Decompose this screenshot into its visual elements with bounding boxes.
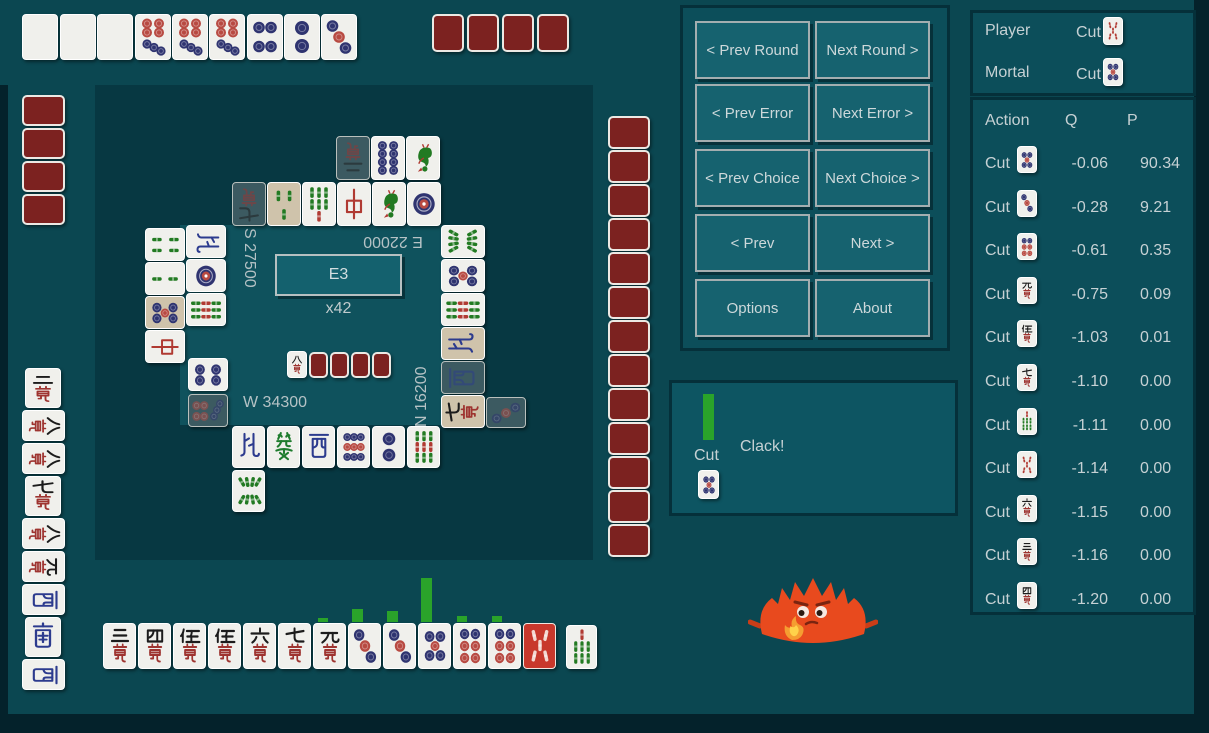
- tile-bk: [608, 218, 650, 251]
- tile-6p: [488, 623, 521, 669]
- tile-3p: [486, 397, 526, 428]
- prev-button[interactable]: < Prev: [695, 214, 810, 272]
- tile-bk: [467, 14, 499, 52]
- q-column-header: Q: [1065, 112, 1077, 130]
- tile-7p: [172, 14, 208, 60]
- frame-edge-left: [0, 85, 8, 733]
- q-value: -0.06: [1058, 155, 1108, 173]
- tile-4p: [247, 14, 283, 60]
- score-east: E 22000: [348, 232, 438, 250]
- tile-bk: [608, 354, 650, 387]
- tile-bk: [608, 252, 650, 285]
- mortal-label: Mortal: [985, 64, 1029, 82]
- action-column-header: Action: [985, 112, 1029, 130]
- tile-2m: [25, 368, 61, 408]
- thinking-crab-icon: [748, 556, 878, 648]
- tile-bk: [22, 161, 65, 192]
- tile-C: [337, 182, 371, 226]
- event-action-label: Cut: [694, 447, 719, 465]
- p-value: 0.00: [1140, 417, 1171, 435]
- tile-5m: [208, 623, 241, 669]
- q-value: -1.11: [1058, 417, 1108, 435]
- tile-bk: [502, 14, 534, 52]
- tile-bk: [537, 14, 569, 52]
- action-label: Cut: [985, 504, 1010, 522]
- tile-3m: [103, 623, 136, 669]
- score-west: W 34300: [243, 394, 307, 412]
- tile-r5s: [1017, 451, 1037, 478]
- tile-6m: [243, 623, 276, 669]
- event-policy-bar: [703, 394, 714, 440]
- tile-7p: [209, 14, 245, 60]
- tile-4p: [188, 358, 228, 391]
- tile-8s: [441, 225, 485, 258]
- tile-bk: [608, 320, 650, 353]
- tile-7m: [232, 182, 266, 226]
- tile-8m: [22, 410, 65, 441]
- score-south: S 27500: [240, 228, 258, 288]
- tile-1p: [186, 259, 226, 292]
- tile-3p: [1017, 190, 1037, 217]
- tile-bk: [608, 286, 650, 319]
- tile-2s: [145, 262, 185, 295]
- tile-S: [25, 617, 61, 657]
- tile-7p: [135, 14, 171, 60]
- p-column-header: P: [1127, 112, 1138, 130]
- tile-5p: [418, 623, 451, 669]
- tile-5p: [1103, 58, 1123, 86]
- tile-9m: [22, 551, 65, 582]
- tile-bk: [22, 194, 65, 225]
- tile-3p: [348, 623, 381, 669]
- tile-5p: [145, 296, 185, 329]
- next-error-button[interactable]: Next Error >: [815, 84, 930, 142]
- tile-4m: [138, 623, 171, 669]
- tile-7s: [1017, 408, 1037, 435]
- action-label: Cut: [985, 329, 1010, 347]
- tile-5p: [441, 259, 485, 292]
- action-label: Cut: [985, 547, 1010, 565]
- tile-r5s: [523, 623, 556, 669]
- p-value: 0.00: [1140, 591, 1171, 609]
- p-value: 0.00: [1140, 460, 1171, 478]
- tile-8p: [371, 136, 405, 180]
- tile-7s: [302, 182, 336, 226]
- q-value: -1.15: [1058, 504, 1108, 522]
- action-label: Cut: [985, 199, 1010, 217]
- about-button[interactable]: About: [815, 279, 930, 337]
- tile-8m: [22, 518, 65, 549]
- next-button[interactable]: Next >: [815, 214, 930, 272]
- q-value: -1.16: [1058, 547, 1108, 565]
- tile-7m: [25, 476, 61, 516]
- score-north: N 16200: [413, 367, 431, 428]
- tile-C: [145, 330, 185, 363]
- tile-F: [267, 426, 300, 468]
- mahjong-review-window: S 27500 E 22000 W 34300 N 16200 E3 x42 <…: [0, 0, 1209, 733]
- p-value: 0.00: [1140, 504, 1171, 522]
- tile-bk: [22, 128, 65, 159]
- action-label: Cut: [985, 155, 1010, 173]
- player-label: Player: [985, 22, 1030, 40]
- tile-bk: [309, 352, 328, 378]
- tile-8m: [287, 351, 307, 378]
- tile-3p: [321, 14, 357, 60]
- options-button[interactable]: Options: [695, 279, 810, 337]
- policy-bar: [318, 618, 328, 622]
- action-label: Cut: [985, 591, 1010, 609]
- tile-W: [22, 584, 65, 615]
- tile-2m: [336, 136, 370, 180]
- tile-blk: [22, 14, 58, 60]
- tile-1p: [407, 182, 441, 226]
- policy-bar: [492, 616, 502, 622]
- action-label: Cut: [985, 373, 1010, 391]
- tile-bk: [608, 116, 650, 149]
- tile-7s: [566, 625, 597, 669]
- policy-bar: [421, 578, 432, 622]
- controls-panel: < Prev Round Next Round > < Prev Error N…: [683, 8, 947, 348]
- prev-choice-button[interactable]: < Prev Choice: [695, 149, 810, 207]
- action-label: Cut: [985, 242, 1010, 260]
- tile-5m: [1017, 320, 1037, 347]
- action-label: Cut: [985, 417, 1010, 435]
- tile-7p: [188, 394, 228, 427]
- p-value: 9.21: [1140, 199, 1171, 217]
- q-value: -1.14: [1058, 460, 1108, 478]
- tile-bk: [372, 352, 391, 378]
- tile-9s: [407, 426, 440, 468]
- q-value: -0.61: [1058, 242, 1108, 260]
- q-value: -1.20: [1058, 591, 1108, 609]
- tile-5m: [173, 623, 206, 669]
- action-table-panel: [973, 100, 1193, 612]
- tile-bk: [608, 524, 650, 557]
- tile-bk: [608, 456, 650, 489]
- next-choice-button[interactable]: Next Choice >: [815, 149, 930, 207]
- p-value: 0.01: [1140, 329, 1171, 347]
- prev-round-button[interactable]: < Prev Round: [695, 21, 810, 79]
- tile-W: [22, 659, 65, 690]
- mortal-action-label: Cut: [1076, 66, 1101, 84]
- tile-3p: [383, 623, 416, 669]
- tile-1s: [406, 136, 440, 180]
- event-message: Clack!: [740, 438, 784, 456]
- tile-2p: [372, 426, 405, 468]
- tile-N: [232, 426, 265, 468]
- policy-bar: [387, 611, 398, 622]
- tile-bk: [608, 490, 650, 523]
- tile-9m: [1017, 277, 1037, 304]
- tile-r5s: [1103, 17, 1123, 45]
- tile-N: [441, 327, 485, 360]
- tile-W: [441, 361, 485, 394]
- tile-6p: [453, 623, 486, 669]
- tile-bk: [608, 150, 650, 183]
- policy-bar: [352, 609, 363, 622]
- p-value: 90.34: [1140, 155, 1180, 173]
- tile-9s: [441, 293, 485, 326]
- q-value: -0.75: [1058, 286, 1108, 304]
- q-value: -0.28: [1058, 199, 1108, 217]
- next-round-button[interactable]: Next Round >: [815, 21, 930, 79]
- frame-edge-right: [1194, 0, 1209, 733]
- tile-7m: [278, 623, 311, 669]
- tile-blk: [60, 14, 96, 60]
- tile-3s: [267, 182, 301, 226]
- tile-5p: [698, 470, 719, 499]
- player-action-label: Cut: [1076, 24, 1101, 42]
- tile-bk: [22, 95, 65, 126]
- prev-error-button[interactable]: < Prev Error: [695, 84, 810, 142]
- tile-4s: [145, 228, 185, 261]
- tile-bk: [351, 352, 370, 378]
- tile-bk: [330, 352, 349, 378]
- tile-6m: [1017, 495, 1037, 522]
- policy-bar: [457, 616, 467, 622]
- tile-6p: [1017, 233, 1037, 260]
- tile-N: [186, 225, 226, 258]
- tile-8m: [22, 443, 65, 474]
- frame-edge-bottom: [0, 714, 1209, 733]
- tile-7m: [441, 395, 485, 428]
- q-value: -1.10: [1058, 373, 1108, 391]
- tile-5p: [1017, 146, 1037, 173]
- tile-7m: [1017, 364, 1037, 391]
- tile-W: [302, 426, 335, 468]
- p-value: 0.00: [1140, 547, 1171, 565]
- tile-4m: [1017, 582, 1037, 609]
- tile-bk: [608, 422, 650, 455]
- action-label: Cut: [985, 286, 1010, 304]
- tile-2p: [284, 14, 320, 60]
- tile-8s: [232, 470, 265, 512]
- tile-9s: [186, 293, 226, 326]
- tile-bk: [608, 184, 650, 217]
- tile-bk: [432, 14, 464, 52]
- wall-count-label: x42: [275, 300, 402, 318]
- round-indicator: E3: [275, 254, 402, 296]
- action-label: Cut: [985, 460, 1010, 478]
- p-value: 0.00: [1140, 373, 1171, 391]
- q-value: -1.03: [1058, 329, 1108, 347]
- tile-3m: [1017, 538, 1037, 565]
- p-value: 0.09: [1140, 286, 1171, 304]
- tile-bk: [608, 388, 650, 421]
- tile-9m: [313, 623, 346, 669]
- tile-1s: [372, 182, 406, 226]
- p-value: 0.35: [1140, 242, 1171, 260]
- tile-9p: [337, 426, 370, 468]
- tile-blk: [97, 14, 133, 60]
